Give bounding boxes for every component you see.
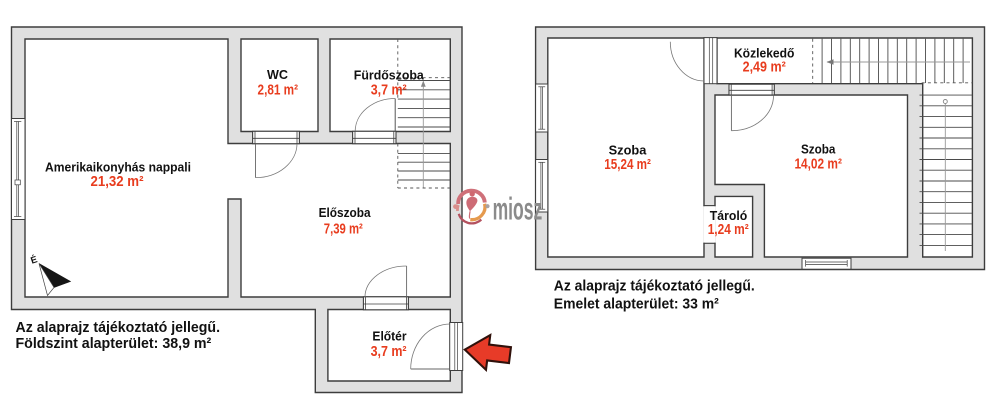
svg-text:WC: WC [267, 67, 289, 82]
svg-text:Földszint alapterület: 38,9 m²: Földszint alapterület: 38,9 m² [16, 335, 212, 352]
svg-text:2,81 m²: 2,81 m² [258, 83, 299, 99]
svg-text:Tároló: Tároló [710, 208, 748, 223]
svg-text:14,02 m²: 14,02 m² [794, 157, 842, 173]
svg-text:7,39 m²: 7,39 m² [324, 221, 363, 237]
svg-text:Előszoba: Előszoba [319, 205, 372, 220]
svg-text:Szoba: Szoba [801, 142, 836, 157]
svg-text:3,7 m²: 3,7 m² [371, 344, 407, 360]
svg-text:miosz: miosz [493, 193, 543, 227]
svg-text:Szoba: Szoba [609, 142, 647, 157]
svg-text:1,24 m²: 1,24 m² [708, 222, 749, 238]
svg-text:Emelet alapterület: 33 m²: Emelet alapterület: 33 m² [554, 296, 719, 313]
svg-text:Az alaprajz tájékoztató jelleg: Az alaprajz tájékoztató jellegű. [16, 319, 221, 336]
svg-text:3,7 m²: 3,7 m² [371, 83, 407, 99]
svg-text:Fürdőszoba: Fürdőszoba [354, 67, 425, 82]
svg-text:Amerikaikonyhás nappali: Amerikaikonyhás nappali [45, 159, 191, 174]
svg-text:Közlekedő: Közlekedő [734, 46, 795, 61]
svg-text:21,32 m²: 21,32 m² [91, 174, 144, 190]
svg-text:Előtér: Előtér [372, 329, 406, 344]
svg-text:15,24 m²: 15,24 m² [604, 157, 651, 173]
svg-text:Az alaprajz tájékoztató jelleg: Az alaprajz tájékoztató jellegű. [554, 278, 755, 295]
svg-text:2,49 m²: 2,49 m² [743, 59, 786, 75]
